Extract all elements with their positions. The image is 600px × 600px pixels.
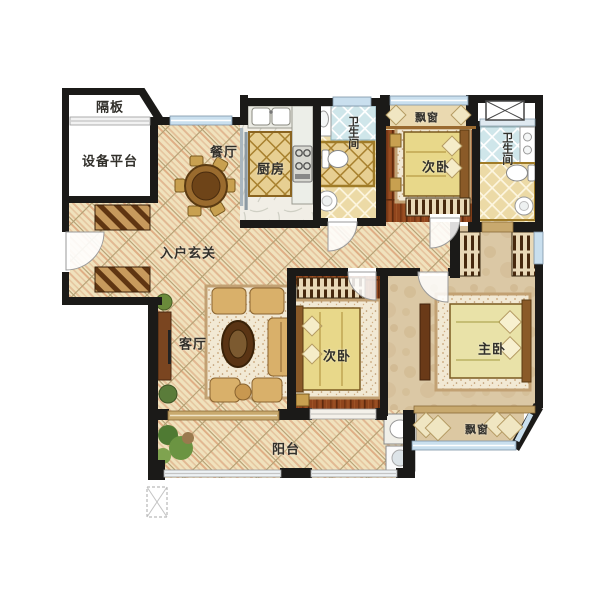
nightstand [296, 394, 309, 406]
shoe-cabinet [95, 267, 150, 292]
room-label-kitchen: 厨房 [257, 159, 285, 178]
bay-top-sill-line [386, 126, 476, 129]
toilet-icon-bath2 [507, 165, 536, 181]
shaft-symbol [486, 101, 524, 120]
bathroom2-vanity [520, 127, 535, 163]
bath1-window [333, 97, 371, 106]
vent-symbol [147, 487, 167, 517]
wardrobe-master-left [459, 232, 480, 276]
floor-plan: 隔板 设备平台 餐厅 厨房 卫生间 飘窗 次卧 卫生间 入户玄关 客厅 次卧 主… [0, 0, 600, 600]
shoe-cabinet [95, 205, 150, 230]
bedroom-mid-furniture [294, 278, 365, 406]
room-label-bay-window-top: 飘窗 [415, 109, 439, 125]
room-label-bathroom1: 卫生间 [346, 116, 358, 149]
room-label-living-room: 客厅 [179, 334, 207, 353]
room-label-bathroom2: 卫生间 [500, 132, 512, 165]
nightstand [390, 134, 401, 147]
sofa-seat [250, 288, 284, 314]
room-label-bedroom-top: 次卧 [422, 157, 450, 176]
room-label-master-bedroom: 主卧 [478, 339, 506, 358]
room-label-bedroom-mid: 次卧 [323, 346, 351, 365]
bath2-door-threshold [482, 222, 513, 232]
plant-icon [159, 385, 177, 403]
pedestal-sink-icon-bath2 [515, 197, 533, 215]
bathroom2-basin-icon [524, 133, 532, 141]
nightstand [390, 178, 401, 191]
room-label-partition: 隔板 [96, 97, 124, 116]
floor-plan-drawing [0, 0, 600, 600]
room-label-dining: 餐厅 [210, 142, 238, 161]
tv-icon [168, 330, 171, 364]
master-tv-bench [420, 304, 430, 380]
master-bay-sill [414, 406, 535, 413]
bedroom-top-headboard [460, 130, 469, 198]
room-label-bay-window-bottom: 飘窗 [465, 421, 489, 437]
toilet-icon-bath1 [322, 150, 348, 168]
master-side-window [534, 232, 543, 264]
room-label-balcony: 阳台 [272, 439, 300, 458]
room-label-equipment-platform: 设备平台 [82, 151, 138, 170]
sofa-seat [212, 288, 246, 314]
stove-icon [293, 146, 312, 182]
kitchen-fixtures [248, 106, 313, 204]
wardrobe-bedroom-top [406, 198, 470, 216]
stool [235, 384, 251, 400]
room-label-entry-hall: 入户玄关 [160, 243, 216, 262]
master-headboard [522, 300, 531, 382]
sofa-seat [252, 378, 282, 402]
